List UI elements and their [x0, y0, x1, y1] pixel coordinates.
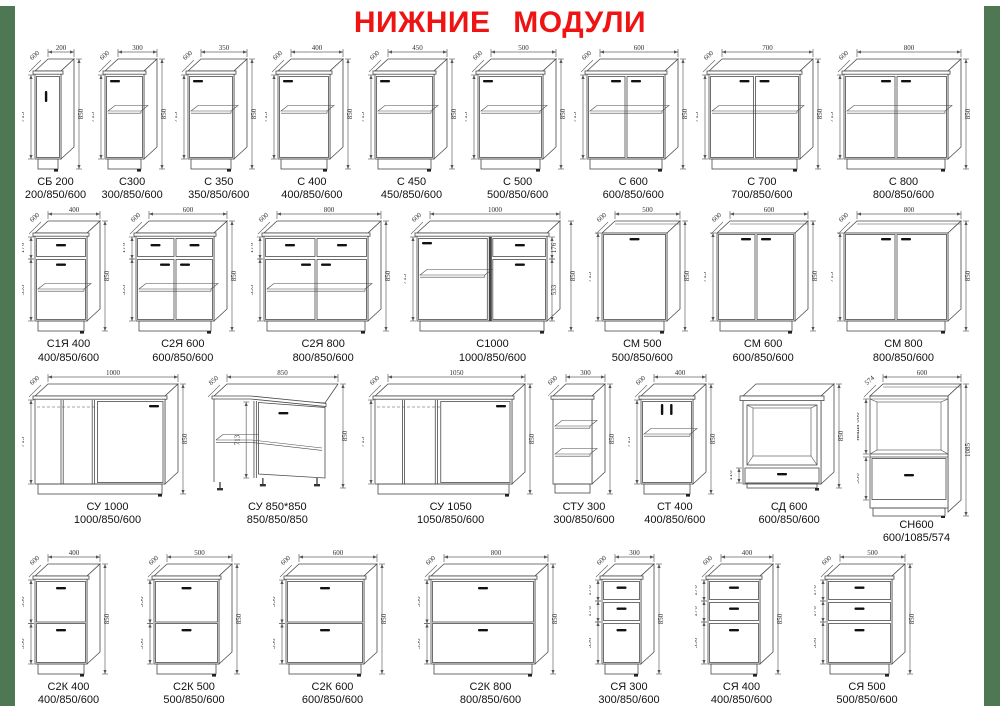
cabinet-label: СТ 400400/850/600: [644, 501, 705, 527]
svg-text:850: 850: [551, 613, 559, 624]
svg-text:356: 356: [22, 596, 26, 607]
cabinet-item: 800600356356850С2К 800800/850/600: [418, 548, 563, 707]
cabinet-size: 500/850/600: [163, 694, 224, 707]
svg-text:600: 600: [147, 554, 161, 567]
svg-text:600: 600: [333, 549, 344, 557]
svg-text:600: 600: [580, 49, 594, 62]
svg-text:1000: 1000: [488, 206, 503, 214]
cabinet-name: СБ 200: [25, 176, 86, 189]
cabinet-name: СМ 500: [612, 338, 673, 351]
cabinet-size: 800/850/600: [293, 352, 354, 365]
svg-text:850: 850: [230, 271, 238, 282]
svg-text:600: 600: [183, 206, 194, 214]
svg-text:800: 800: [904, 206, 915, 214]
cabinet-name: С 350: [188, 176, 249, 189]
cabinet-drawing: 600574ниша 6003561085: [857, 368, 976, 518]
cabinet-size: 600/850/600: [759, 514, 820, 527]
cabinet-drawing: 500600356356850: [141, 548, 247, 680]
svg-text:850: 850: [346, 108, 354, 119]
svg-text:850: 850: [681, 108, 689, 119]
svg-text:400: 400: [675, 369, 686, 377]
cabinet-size: 200/850/600: [25, 189, 86, 202]
svg-text:356: 356: [814, 637, 818, 648]
cabinet-name: С300: [102, 176, 163, 189]
cabinet-label: С1Я 400400/850/600: [38, 338, 99, 364]
cabinet-name: СЯ 400: [711, 681, 772, 694]
svg-text:713: 713: [362, 436, 366, 447]
cabinet-name: С2К 600: [302, 681, 363, 694]
cabinet-drawing: 600600713850: [704, 205, 823, 337]
cabinet-item: 400600356356850С2К 400400/850/600: [22, 548, 115, 707]
svg-text:850: 850: [181, 433, 189, 444]
cabinet-drawing: 400600176176356850: [695, 548, 788, 680]
cabinet-label: С10001000/850/600: [459, 338, 526, 364]
cabinet-size: 600/850/600: [733, 352, 794, 365]
svg-text:850: 850: [380, 613, 388, 624]
svg-text:600: 600: [820, 554, 834, 567]
svg-text:600: 600: [710, 211, 724, 224]
cabinet-name: СТУ 300: [553, 501, 614, 514]
svg-text:533: 533: [22, 285, 26, 296]
cabinet-name: С 500: [487, 176, 548, 189]
svg-text:ниша 600: ниша 600: [857, 412, 861, 441]
svg-text:850: 850: [811, 271, 819, 282]
svg-text:713: 713: [574, 111, 578, 122]
svg-text:850: 850: [657, 613, 665, 624]
cabinet-label: С300300/850/600: [102, 176, 163, 202]
cabinet-name: СН600: [883, 519, 950, 532]
cabinet-item: 500600176176356850СЯ 500500/850/600: [814, 548, 920, 707]
cabinet-item: 400600713850С 400400/850/600: [265, 43, 358, 202]
svg-text:850: 850: [569, 271, 577, 282]
cabinet-item: 116850СД 600600/850/600: [730, 368, 849, 527]
cabinet-name: СУ 850*850: [247, 501, 308, 514]
svg-text:600: 600: [471, 49, 485, 62]
svg-text:850: 850: [450, 108, 458, 119]
cabinet-drawing: 800600176533850: [251, 205, 396, 337]
cabinet-name: СМ 600: [733, 338, 794, 351]
cabinet-item: 1050600713850СУ 10501050/850/600: [362, 368, 540, 527]
svg-text:176: 176: [251, 243, 255, 254]
svg-text:600: 600: [257, 211, 271, 224]
cabinet-name: СУ 1000: [74, 501, 141, 514]
cabinet-drawing: 300600176176356850: [589, 548, 669, 680]
svg-text:850: 850: [528, 433, 536, 444]
cabinet-size: 450/850/600: [381, 189, 442, 202]
cabinet-drawing: 500600176176356850: [814, 548, 920, 680]
svg-text:850: 850: [816, 108, 824, 119]
cabinet-item: 800600713850СМ 800800/850/600: [831, 205, 976, 364]
cabinet-drawing: 500600713850: [465, 43, 571, 175]
cabinet-label: СТУ 300300/850/600: [553, 501, 614, 527]
svg-text:713: 713: [22, 111, 26, 122]
svg-text:713: 713: [628, 436, 632, 447]
svg-text:300: 300: [132, 44, 143, 52]
cabinet-size: 850/850/850: [247, 514, 308, 527]
svg-text:850: 850: [77, 108, 85, 119]
svg-text:500: 500: [867, 549, 878, 557]
svg-text:600: 600: [129, 211, 143, 224]
svg-text:850: 850: [908, 613, 916, 624]
cabinet-name: С2К 400: [38, 681, 99, 694]
cabinet-item: 200600713850СБ 200200/850/600: [22, 43, 89, 202]
cabinet-name: С 400: [281, 176, 342, 189]
cabinet-item: 500600356356850С2К 500500/850/600: [141, 548, 247, 707]
svg-text:400: 400: [69, 206, 80, 214]
cabinet-label: СМ 800800/850/600: [873, 338, 934, 364]
svg-text:600: 600: [98, 49, 112, 62]
cabinet-item: 450600713850С 450450/850/600: [362, 43, 462, 202]
svg-text:400: 400: [742, 549, 753, 557]
module-row: 400600176533850С1Я 400400/850/6006006001…: [22, 205, 976, 364]
cabinet-size: 800/850/600: [873, 189, 934, 202]
svg-text:116: 116: [730, 470, 734, 481]
svg-text:356: 356: [273, 638, 277, 649]
svg-text:850: 850: [341, 430, 349, 441]
cabinet-item: 713850850850СУ 850*850850/850/850: [201, 368, 353, 527]
svg-text:700: 700: [762, 44, 773, 52]
cabinet-size: 350/850/600: [188, 189, 249, 202]
cabinet-drawing: 600600356356850: [273, 548, 392, 680]
cabinet-name: СМ 800: [873, 338, 934, 351]
cabinet-drawing: 350600713850: [175, 43, 262, 175]
svg-text:850: 850: [837, 430, 845, 441]
cabinet-label: СЯ 500500/850/600: [836, 681, 897, 707]
cabinet-size: 400/850/600: [281, 189, 342, 202]
modules-catalog: 200600713850СБ 200200/850/60030060071385…: [22, 43, 976, 708]
svg-text:176: 176: [22, 243, 26, 254]
cabinet-item: 700600713850С 700700/850/600: [696, 43, 828, 202]
cabinet-item: 600600176533850С2Я 600600/850/600: [123, 205, 242, 364]
svg-text:713: 713: [831, 272, 835, 283]
svg-text:356: 356: [418, 596, 422, 607]
svg-text:356: 356: [273, 596, 277, 607]
cabinet-drawing: 400600176533850: [22, 205, 115, 337]
cabinet-label: С 700700/850/600: [731, 176, 792, 202]
cabinet-size: 400/850/600: [644, 514, 705, 527]
cabinet-drawing: 713850850850: [201, 368, 353, 500]
svg-text:850: 850: [250, 108, 258, 119]
cabinet-size: 800/850/600: [873, 352, 934, 365]
svg-text:356: 356: [418, 638, 422, 649]
svg-text:850: 850: [683, 271, 691, 282]
cabinet-item: 600574ниша 6003561085СН600600/1085/574: [857, 368, 976, 545]
cabinet-name: СЯ 500: [836, 681, 897, 694]
cabinet-size: 600/850/600: [302, 694, 363, 707]
svg-text:713: 713: [404, 274, 408, 285]
cabinet-label: СУ 10001000/850/600: [74, 501, 141, 527]
svg-text:850: 850: [964, 108, 972, 119]
cabinet-name: СЯ 300: [598, 681, 659, 694]
svg-text:600: 600: [548, 373, 560, 386]
svg-text:850: 850: [709, 433, 717, 444]
cabinet-drawing: 300600850: [548, 368, 620, 500]
cabinet-label: СМ 600600/850/600: [733, 338, 794, 364]
cabinet-size: 1050/850/600: [417, 514, 484, 527]
svg-text:600: 600: [271, 49, 285, 62]
svg-text:850: 850: [608, 433, 616, 444]
cabinet-name: С 450: [381, 176, 442, 189]
svg-text:713: 713: [92, 111, 96, 122]
cabinet-item: 600600356356850С2К 600600/850/600: [273, 548, 392, 707]
cabinet-item: 300600176176356850СЯ 300300/850/600: [589, 548, 669, 707]
svg-text:500: 500: [518, 44, 529, 52]
cabinet-label: СЯ 300300/850/600: [598, 681, 659, 707]
cabinet-label: С2К 800800/850/600: [460, 681, 521, 707]
svg-text:600: 600: [595, 554, 609, 567]
cabinet-size: 600/850/600: [152, 352, 213, 365]
svg-text:600: 600: [837, 211, 851, 224]
cabinet-drawing: 200600713850: [22, 43, 89, 175]
svg-text:850: 850: [964, 271, 972, 282]
cabinet-label: С 500500/850/600: [487, 176, 548, 202]
cabinet-label: СУ 850*850850/850/850: [247, 501, 308, 527]
cabinet-item: 400600176176356850СЯ 400400/850/600: [695, 548, 788, 707]
cabinet-item: 500600713850С 500500/850/600: [465, 43, 571, 202]
cabinet-name: С2Я 800: [293, 338, 354, 351]
svg-text:600: 600: [634, 44, 645, 52]
cabinet-size: 500/850/600: [487, 189, 548, 202]
svg-text:533: 533: [251, 285, 255, 296]
svg-text:200: 200: [56, 44, 67, 52]
cabinet-label: С2Я 800800/850/600: [293, 338, 354, 364]
cabinet-drawing: 1000600713850: [22, 368, 193, 500]
cabinet-item: 300600713850С300300/850/600: [92, 43, 172, 202]
cabinet-label: С 350350/850/600: [188, 176, 249, 202]
cabinet-drawing: 1050600713850: [362, 368, 540, 500]
svg-text:600: 600: [28, 373, 42, 386]
svg-text:356: 356: [589, 637, 593, 648]
cabinet-label: С 400400/850/600: [281, 176, 342, 202]
svg-text:500: 500: [643, 206, 654, 214]
svg-text:176: 176: [550, 243, 558, 254]
svg-text:850: 850: [103, 613, 111, 624]
cabinet-name: СД 600: [759, 501, 820, 514]
cabinet-drawing: 400600713850: [628, 368, 721, 500]
svg-text:356: 356: [141, 638, 145, 649]
cabinet-item: 800600713850С 800800/850/600: [831, 43, 976, 202]
svg-text:356: 356: [22, 638, 26, 649]
cabinet-label: СЯ 400400/850/600: [711, 681, 772, 707]
cabinet-drawing: 800600713850: [831, 43, 976, 175]
cabinet-item: 300600850СТУ 300300/850/600: [548, 368, 620, 527]
svg-text:800: 800: [491, 549, 502, 557]
svg-text:574: 574: [863, 373, 877, 386]
cabinet-label: СБ 200200/850/600: [25, 176, 86, 202]
svg-text:176: 176: [589, 585, 593, 596]
cabinet-name: СУ 1050: [417, 501, 484, 514]
svg-text:600: 600: [368, 373, 382, 386]
cabinet-size: 300/850/600: [102, 189, 163, 202]
svg-text:713: 713: [265, 111, 269, 122]
svg-text:713: 713: [175, 111, 179, 122]
cabinet-item: 1765331000600713850С10001000/850/600: [404, 205, 581, 364]
cabinet-size: 400/850/600: [38, 352, 99, 365]
svg-text:600: 600: [424, 554, 438, 567]
svg-text:600: 600: [279, 554, 293, 567]
svg-text:850: 850: [235, 613, 243, 624]
svg-text:500: 500: [194, 549, 205, 557]
svg-text:400: 400: [69, 549, 80, 557]
svg-text:350: 350: [219, 44, 230, 52]
cabinet-name: С 600: [603, 176, 664, 189]
cabinet-size: 300/850/600: [553, 514, 614, 527]
cabinet-size: 400/850/600: [38, 694, 99, 707]
svg-text:1000: 1000: [106, 369, 121, 377]
svg-text:450: 450: [412, 44, 423, 52]
cabinet-item: 350600713850С 350350/850/600: [175, 43, 262, 202]
cabinet-size: 800/850/600: [460, 694, 521, 707]
svg-text:713: 713: [831, 111, 835, 122]
cabinet-label: СУ 10501050/850/600: [417, 501, 484, 527]
svg-text:850: 850: [160, 108, 168, 119]
cabinet-size: 500/850/600: [836, 694, 897, 707]
module-row: 200600713850СБ 200200/850/60030060071385…: [22, 43, 976, 202]
cabinet-label: С 450450/850/600: [381, 176, 442, 202]
cabinet-drawing: 800600356356850: [418, 548, 563, 680]
cabinet-label: С2К 500500/850/600: [163, 681, 224, 707]
cabinet-item: 600600713850С 600600/850/600: [574, 43, 693, 202]
cabinet-name: С2К 800: [460, 681, 521, 694]
cabinet-item: 400600713850СТ 400400/850/600: [628, 368, 721, 527]
svg-text:400: 400: [312, 44, 323, 52]
svg-text:176: 176: [814, 585, 818, 596]
cabinet-drawing: 300600713850: [92, 43, 172, 175]
svg-text:713: 713: [362, 111, 366, 122]
cabinet-drawing: 700600713850: [696, 43, 828, 175]
svg-text:176: 176: [589, 606, 593, 617]
cabinet-item: 500600713850СМ 500500/850/600: [589, 205, 695, 364]
svg-text:850: 850: [278, 369, 289, 377]
svg-text:800: 800: [323, 206, 334, 214]
cabinet-item: 600600713850СМ 600600/850/600: [704, 205, 823, 364]
cabinet-size: 700/850/600: [731, 189, 792, 202]
svg-text:800: 800: [904, 44, 915, 52]
svg-text:600: 600: [763, 206, 774, 214]
svg-text:600: 600: [28, 49, 42, 62]
left-border-bar: [0, 6, 15, 706]
svg-text:600: 600: [702, 49, 716, 62]
cabinet-drawing: 400600356356850: [22, 548, 115, 680]
cabinet-size: 600/1085/574: [883, 532, 950, 545]
page-title: НИЖНИЕ МОДУЛИ: [0, 6, 1000, 40]
cabinet-label: СД 600600/850/600: [759, 501, 820, 527]
svg-text:1050: 1050: [449, 369, 464, 377]
cabinet-drawing: 116850: [730, 368, 849, 500]
svg-text:600: 600: [181, 49, 195, 62]
svg-text:176: 176: [695, 606, 699, 617]
svg-text:600: 600: [634, 373, 648, 386]
cabinet-drawing: 600600713850: [574, 43, 693, 175]
cabinet-item: 400600176533850С1Я 400400/850/600: [22, 205, 115, 364]
module-row: 1000600713850СУ 10001000/850/60071385085…: [22, 368, 976, 545]
cabinet-drawing: 1765331000600713850: [404, 205, 581, 337]
cabinet-name: С1Я 400: [38, 338, 99, 351]
cabinet-item: 800600176533850С2Я 800800/850/600: [251, 205, 396, 364]
svg-text:850: 850: [384, 271, 392, 282]
svg-text:713: 713: [465, 111, 469, 122]
svg-text:176: 176: [695, 585, 699, 596]
cabinet-size: 400/850/600: [711, 694, 772, 707]
svg-text:600: 600: [595, 211, 609, 224]
svg-text:600: 600: [368, 49, 382, 62]
cabinet-size: 600/850/600: [603, 189, 664, 202]
cabinet-size: 1000/850/600: [459, 352, 526, 365]
module-row: 400600356356850С2К 400400/850/6005006003…: [22, 548, 976, 707]
svg-text:533: 533: [123, 285, 127, 296]
cabinet-drawing: 600600176533850: [123, 205, 242, 337]
svg-text:713: 713: [696, 111, 700, 122]
cabinet-label: С 800800/850/600: [873, 176, 934, 202]
cabinet-drawing: 450600713850: [362, 43, 462, 175]
cabinet-name: СТ 400: [644, 501, 705, 514]
cabinet-size: 500/850/600: [612, 352, 673, 365]
svg-text:356: 356: [141, 596, 145, 607]
cabinet-name: С2Я 600: [152, 338, 213, 351]
cabinet-drawing: 500600713850: [589, 205, 695, 337]
svg-text:713: 713: [234, 434, 242, 445]
svg-text:176: 176: [123, 243, 127, 254]
svg-text:850: 850: [776, 613, 784, 624]
svg-text:850: 850: [207, 373, 221, 386]
svg-text:600: 600: [701, 554, 715, 567]
svg-text:1085: 1085: [964, 442, 972, 457]
cabinet-name: С 700: [731, 176, 792, 189]
cabinet-label: СН600600/1085/574: [883, 519, 950, 545]
cabinet-name: С 800: [873, 176, 934, 189]
cabinet-label: С2К 600600/850/600: [302, 681, 363, 707]
svg-text:356: 356: [695, 637, 699, 648]
cabinet-label: СМ 500500/850/600: [612, 338, 673, 364]
cabinet-label: С2Я 600600/850/600: [152, 338, 213, 364]
cabinet-item: 1000600713850СУ 10001000/850/600: [22, 368, 193, 527]
cabinet-drawing: 400600713850: [265, 43, 358, 175]
svg-text:533: 533: [550, 285, 558, 296]
svg-text:600: 600: [28, 211, 42, 224]
svg-text:176: 176: [814, 606, 818, 617]
svg-text:713: 713: [704, 272, 708, 283]
svg-text:713: 713: [22, 436, 26, 447]
svg-text:600: 600: [917, 369, 928, 377]
svg-text:300: 300: [580, 369, 591, 377]
svg-text:713: 713: [589, 272, 593, 283]
svg-text:300: 300: [629, 549, 640, 557]
cabinet-label: С 600600/850/600: [603, 176, 664, 202]
right-border-bar: [984, 6, 1000, 706]
cabinet-size: 1000/850/600: [74, 514, 141, 527]
svg-text:850: 850: [103, 271, 111, 282]
svg-text:356: 356: [857, 473, 861, 484]
svg-text:850: 850: [559, 108, 567, 119]
cabinet-drawing: 800600713850: [831, 205, 976, 337]
svg-text:600: 600: [28, 554, 42, 567]
cabinet-name: С1000: [459, 338, 526, 351]
cabinet-name: С2К 500: [163, 681, 224, 694]
svg-text:600: 600: [837, 49, 851, 62]
cabinet-label: С2К 400400/850/600: [38, 681, 99, 707]
cabinet-size: 300/850/600: [598, 694, 659, 707]
svg-text:600: 600: [410, 211, 424, 224]
